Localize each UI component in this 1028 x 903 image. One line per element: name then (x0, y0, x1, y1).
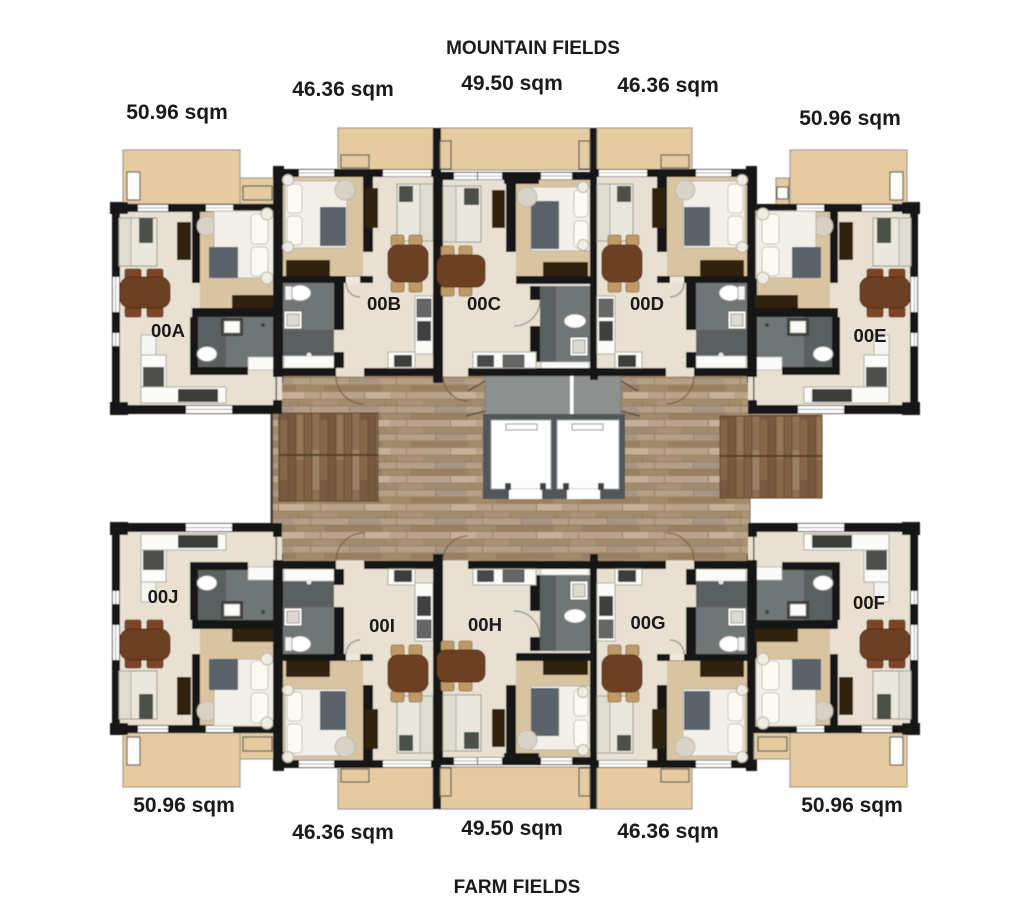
svg-text:46.36 sqm: 46.36 sqm (292, 78, 394, 101)
svg-text:00B: 00B (367, 293, 401, 314)
svg-text:00E: 00E (854, 325, 887, 346)
svg-text:00F: 00F (853, 592, 885, 613)
svg-text:46.36 sqm: 46.36 sqm (292, 821, 394, 844)
svg-text:00I: 00I (369, 615, 395, 636)
svg-text:50.96 sqm: 50.96 sqm (126, 101, 228, 124)
svg-text:46.36 sqm: 46.36 sqm (617, 74, 719, 97)
svg-text:00D: 00D (630, 293, 664, 314)
svg-text:00J: 00J (148, 586, 179, 607)
svg-text:50.96 sqm: 50.96 sqm (801, 794, 903, 817)
svg-text:00H: 00H (468, 614, 502, 635)
svg-text:00G: 00G (631, 612, 666, 633)
svg-text:00A: 00A (151, 320, 185, 341)
svg-text:MOUNTAIN FIELDS: MOUNTAIN FIELDS (446, 38, 620, 59)
svg-text:49.50 sqm: 49.50 sqm (461, 72, 563, 95)
svg-text:00C: 00C (467, 293, 501, 314)
svg-text:46.36 sqm: 46.36 sqm (617, 820, 719, 843)
svg-text:FARM FIELDS: FARM FIELDS (454, 877, 581, 898)
svg-text:50.96 sqm: 50.96 sqm (799, 107, 901, 130)
svg-text:50.96 sqm: 50.96 sqm (133, 794, 235, 817)
svg-text:49.50 sqm: 49.50 sqm (461, 817, 563, 840)
